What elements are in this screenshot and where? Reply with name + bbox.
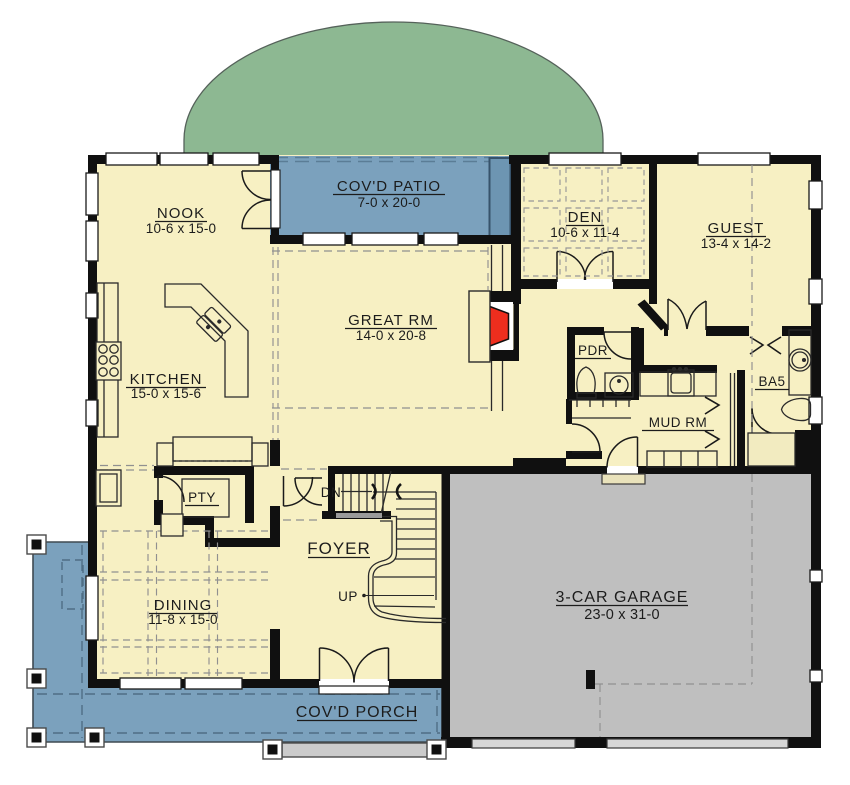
- svg-text:11-8 x 15-0: 11-8 x 15-0: [148, 612, 218, 627]
- svg-text:3-CAR GARAGE: 3-CAR GARAGE: [556, 589, 689, 606]
- svg-text:13-4 x 14-2: 13-4 x 14-2: [701, 236, 772, 251]
- svg-text:NOOK: NOOK: [157, 205, 205, 222]
- svg-text:GUEST: GUEST: [708, 220, 765, 237]
- svg-text:15-0 x 15-6: 15-0 x 15-6: [131, 386, 202, 401]
- svg-text:14-0 x 20-8: 14-0 x 20-8: [356, 328, 427, 343]
- svg-text:10-6 x 15-0: 10-6 x 15-0: [146, 221, 217, 236]
- svg-text:23-0 x 31-0: 23-0 x 31-0: [584, 607, 660, 623]
- svg-text:PDR: PDR: [578, 343, 608, 358]
- svg-text:COV'D PORCH: COV'D PORCH: [296, 704, 419, 721]
- svg-text:COV'D PATIO: COV'D PATIO: [337, 178, 441, 195]
- svg-text:10-6 x 11-4: 10-6 x 11-4: [550, 225, 620, 240]
- svg-text:MUD RM: MUD RM: [649, 415, 708, 430]
- svg-text:DEN: DEN: [568, 209, 603, 226]
- svg-text:GREAT RM: GREAT RM: [348, 312, 434, 329]
- svg-text:DN: DN: [321, 485, 342, 500]
- svg-text:PTY: PTY: [188, 490, 216, 505]
- svg-text:FOYER: FOYER: [307, 539, 371, 558]
- svg-text:BA5: BA5: [758, 374, 785, 389]
- svg-text:UP: UP: [338, 589, 358, 604]
- svg-text:7-0 x 20-0: 7-0 x 20-0: [358, 195, 421, 210]
